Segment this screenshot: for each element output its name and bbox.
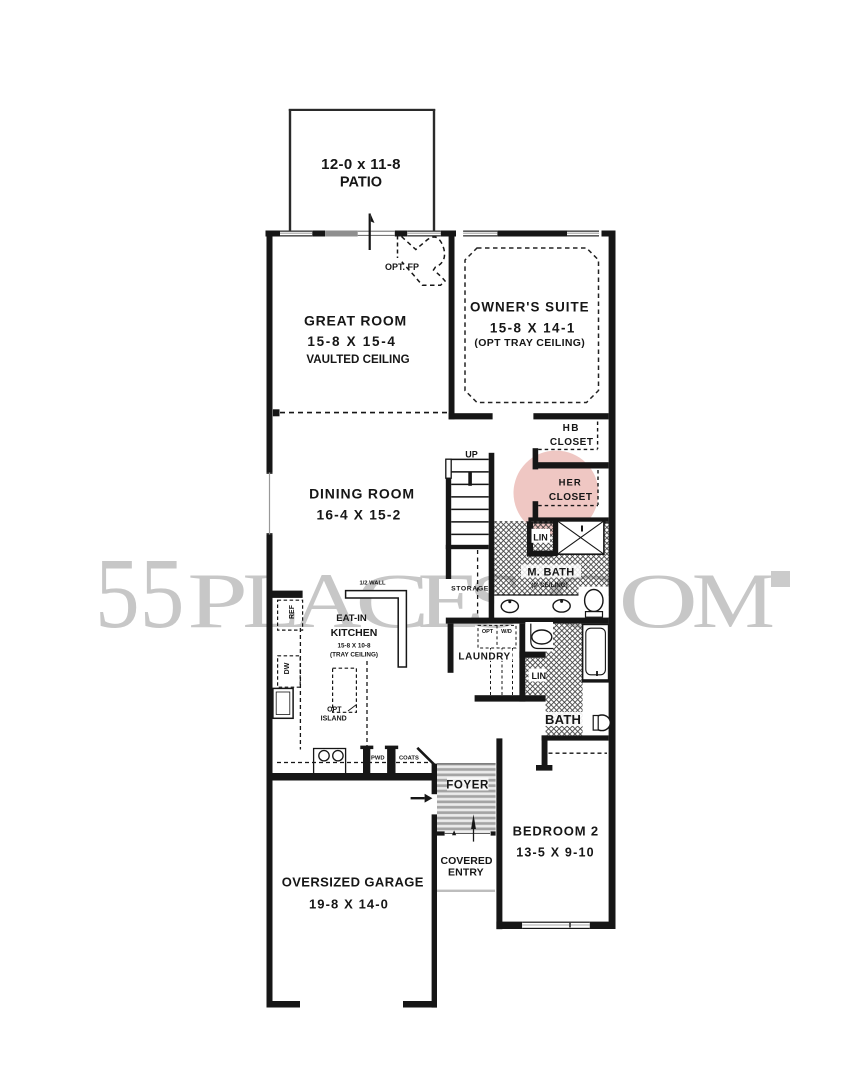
svg-text:LAUNDRY: LAUNDRY xyxy=(458,652,510,663)
svg-text:(OPT TRAY CEILING): (OPT TRAY CEILING) xyxy=(474,337,585,349)
svg-text:VAULTED CEILING: VAULTED CEILING xyxy=(306,353,409,366)
svg-text:HB: HB xyxy=(563,423,580,434)
svg-text:55: 55 xyxy=(95,537,184,649)
svg-text:15-8 X 10-8: 15-8 X 10-8 xyxy=(338,643,371,650)
svg-text:LIN: LIN xyxy=(533,533,548,543)
svg-text:CLOSET: CLOSET xyxy=(549,492,593,503)
svg-text:13-5 X 9-10: 13-5 X 9-10 xyxy=(516,845,595,859)
svg-text:PWD: PWD xyxy=(371,756,385,762)
svg-text:BEDROOM 2: BEDROOM 2 xyxy=(513,824,599,839)
svg-text:W/D: W/D xyxy=(501,629,512,635)
svg-text:16-4 X 15-2: 16-4 X 15-2 xyxy=(316,508,401,523)
svg-text:STORAGE: STORAGE xyxy=(451,585,489,592)
svg-text:12-0 x 11-8: 12-0 x 11-8 xyxy=(321,156,401,173)
svg-text:DINING ROOM: DINING ROOM xyxy=(309,486,415,502)
svg-text:HER: HER xyxy=(559,478,582,489)
svg-text:DW: DW xyxy=(284,662,291,674)
svg-text:UP: UP xyxy=(465,450,478,460)
svg-text:FOYER: FOYER xyxy=(446,780,489,792)
svg-text:KITCHEN: KITCHEN xyxy=(331,627,378,639)
svg-text:(9' CEILING): (9' CEILING) xyxy=(531,582,567,589)
svg-text:REF: REF xyxy=(289,604,296,619)
svg-text:M. BATH: M. BATH xyxy=(527,567,574,579)
svg-text:M: M xyxy=(692,557,775,644)
svg-text:PATIO: PATIO xyxy=(340,175,382,191)
svg-text:CLOSET: CLOSET xyxy=(550,437,594,448)
svg-text:EAT-IN: EAT-IN xyxy=(336,613,367,624)
svg-text:15-8 X 15-4: 15-8 X 15-4 xyxy=(307,334,396,349)
svg-text:(TRAY CEILING): (TRAY CEILING) xyxy=(330,652,378,659)
svg-text:P: P xyxy=(187,557,248,644)
svg-text:1/2 WALL: 1/2 WALL xyxy=(359,581,386,587)
svg-text:BATH: BATH xyxy=(545,712,581,727)
svg-text:GREAT ROOM: GREAT ROOM xyxy=(304,312,407,328)
svg-text:OPT: OPT xyxy=(482,629,494,635)
svg-text:LIN: LIN xyxy=(532,671,547,681)
svg-text:19-8 X 14-0: 19-8 X 14-0 xyxy=(309,897,389,912)
svg-text:OWNER'S SUITE: OWNER'S SUITE xyxy=(470,299,590,314)
svg-text:ENTRY: ENTRY xyxy=(448,867,484,879)
svg-text:OPT: OPT xyxy=(327,707,342,714)
svg-text:OVERSIZED GARAGE: OVERSIZED GARAGE xyxy=(282,875,424,890)
svg-text:O: O xyxy=(619,557,698,644)
svg-text:15-8 X 14-1: 15-8 X 14-1 xyxy=(490,320,576,335)
svg-text:OPT. FP: OPT. FP xyxy=(385,262,419,272)
svg-text:COATS: COATS xyxy=(399,756,419,762)
svg-text:COVERED: COVERED xyxy=(441,855,493,867)
svg-text:ISLAND: ISLAND xyxy=(321,716,347,723)
